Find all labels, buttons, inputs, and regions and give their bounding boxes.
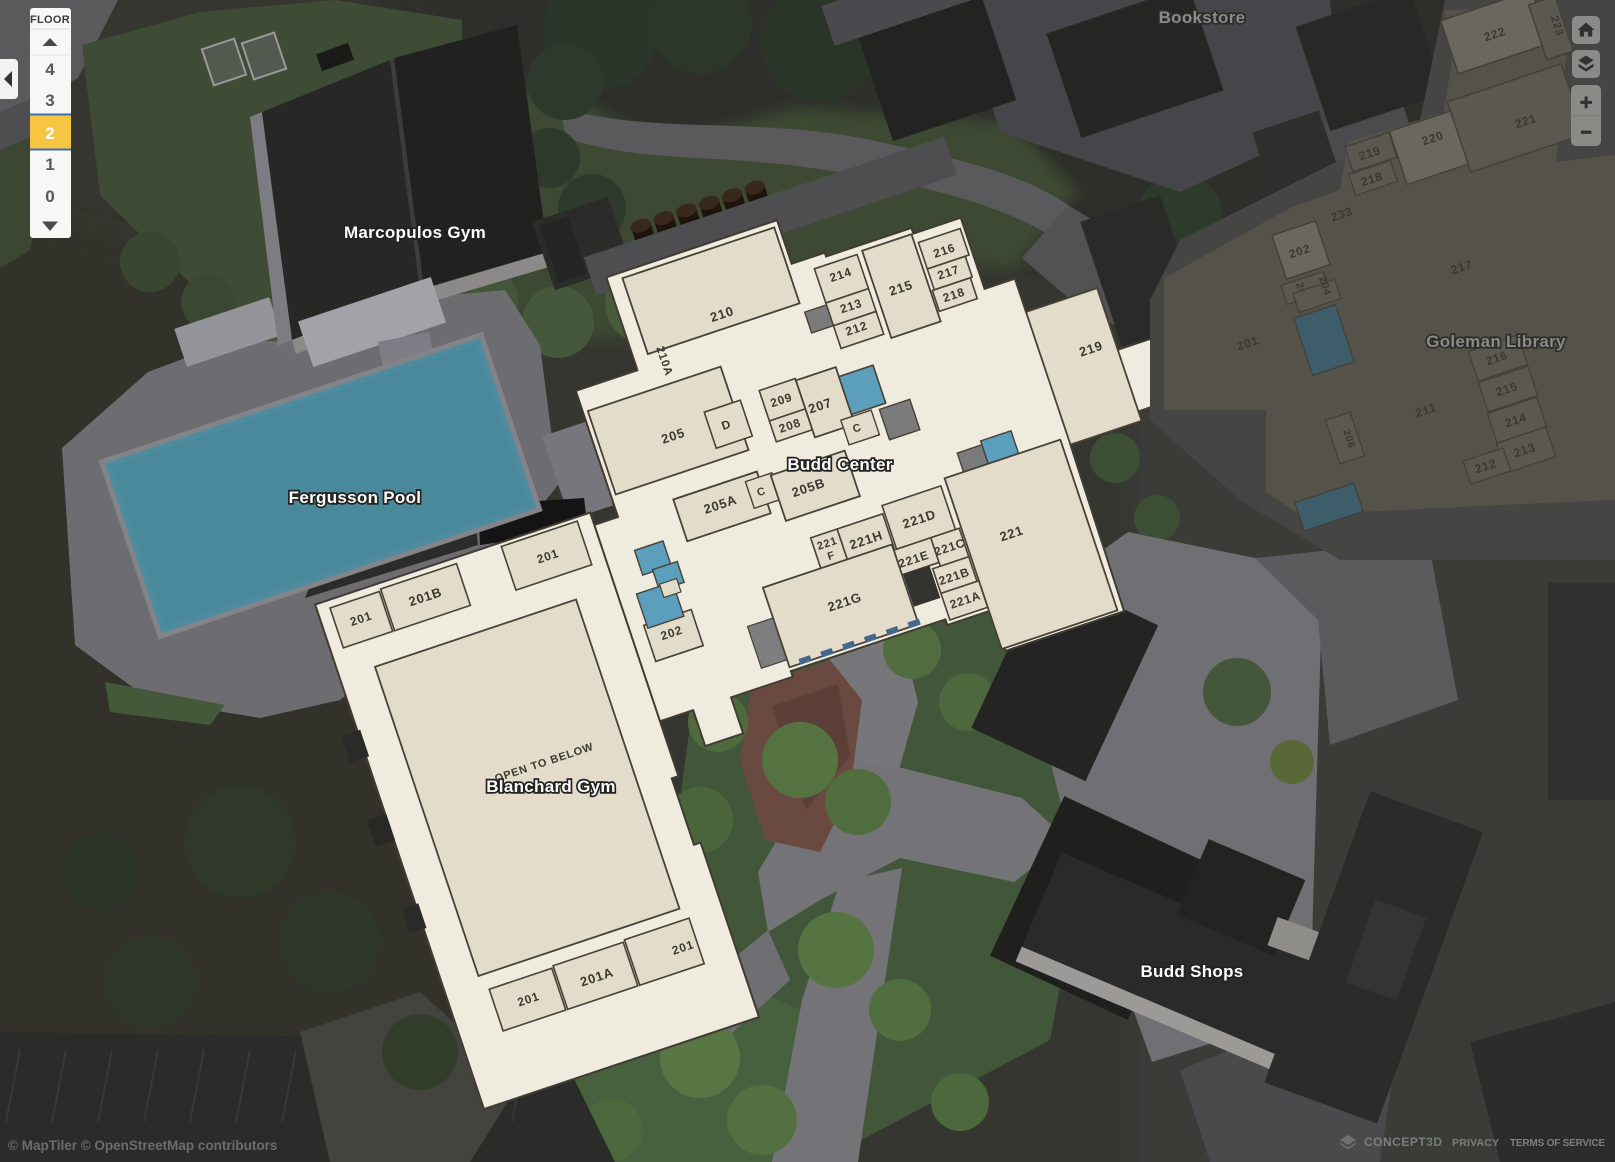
svg-text:© MapTiler © OpenStreetMap con: © MapTiler © OpenStreetMap contributors bbox=[8, 1138, 277, 1153]
svg-text:0: 0 bbox=[45, 187, 54, 206]
svg-text:2: 2 bbox=[45, 124, 54, 143]
svg-text:1: 1 bbox=[45, 155, 54, 174]
svg-text:FLOOR: FLOOR bbox=[30, 14, 70, 26]
svg-text:Fergusson Pool: Fergusson Pool bbox=[289, 488, 422, 507]
svg-text:CONCEPT3D: CONCEPT3D bbox=[1364, 1135, 1443, 1149]
svg-text:Blanchard Gym: Blanchard Gym bbox=[486, 777, 616, 796]
svg-text:Budd Center: Budd Center bbox=[787, 455, 892, 474]
svg-text:PRIVACY: PRIVACY bbox=[1452, 1137, 1499, 1149]
svg-text:Marcopulos Gym: Marcopulos Gym bbox=[344, 223, 486, 242]
svg-text:3: 3 bbox=[45, 91, 54, 110]
svg-text:TERMS OF SERVICE: TERMS OF SERVICE bbox=[1510, 1138, 1605, 1149]
svg-text:4: 4 bbox=[45, 60, 55, 79]
svg-text:Budd Shops: Budd Shops bbox=[1140, 962, 1243, 981]
svg-text:Goleman Library: Goleman Library bbox=[1426, 332, 1566, 351]
svg-text:Bookstore: Bookstore bbox=[1159, 8, 1246, 27]
